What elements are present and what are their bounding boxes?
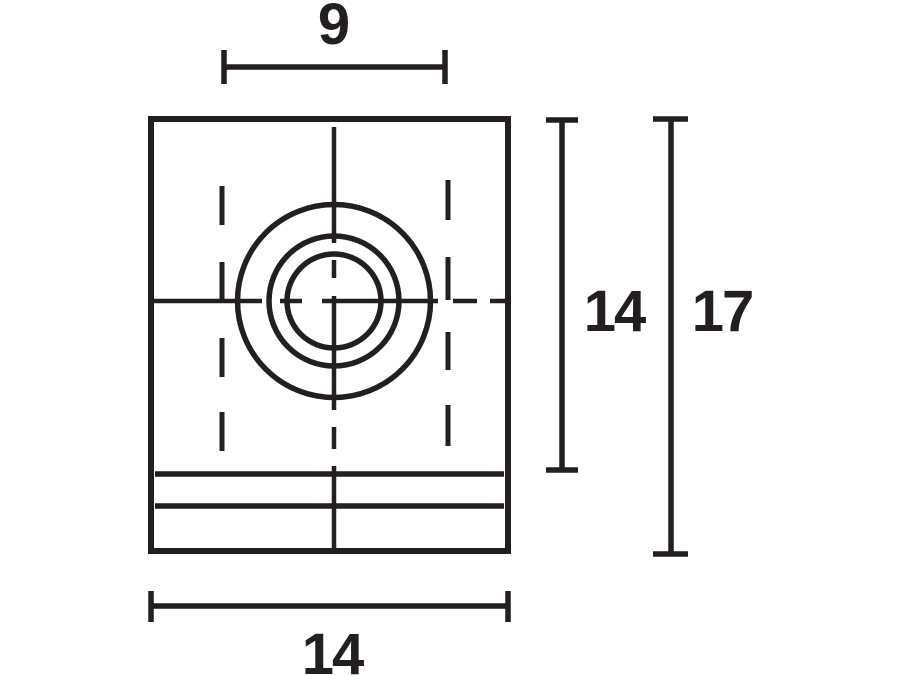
part-front-view bbox=[151, 119, 508, 551]
dimension-drawing: 9 14 17 14 bbox=[0, 0, 900, 675]
dim-label-overall-height: 17 bbox=[692, 279, 753, 344]
dimension-line-body-height bbox=[546, 120, 578, 470]
dim-label-hole-spacing-width: 9 bbox=[318, 0, 349, 57]
dimension-labels: 9 14 17 14 bbox=[302, 0, 753, 675]
drawing-canvas: 9 14 17 14 bbox=[0, 0, 900, 675]
base-slot-lines bbox=[155, 474, 504, 506]
dimension-line-overall-width bbox=[151, 591, 508, 622]
dim-label-body-height: 14 bbox=[584, 279, 646, 344]
center-lines bbox=[153, 127, 506, 549]
dim-label-overall-width: 14 bbox=[302, 622, 364, 675]
part-outline bbox=[151, 119, 508, 551]
dimension-line-overall-height bbox=[653, 119, 688, 554]
